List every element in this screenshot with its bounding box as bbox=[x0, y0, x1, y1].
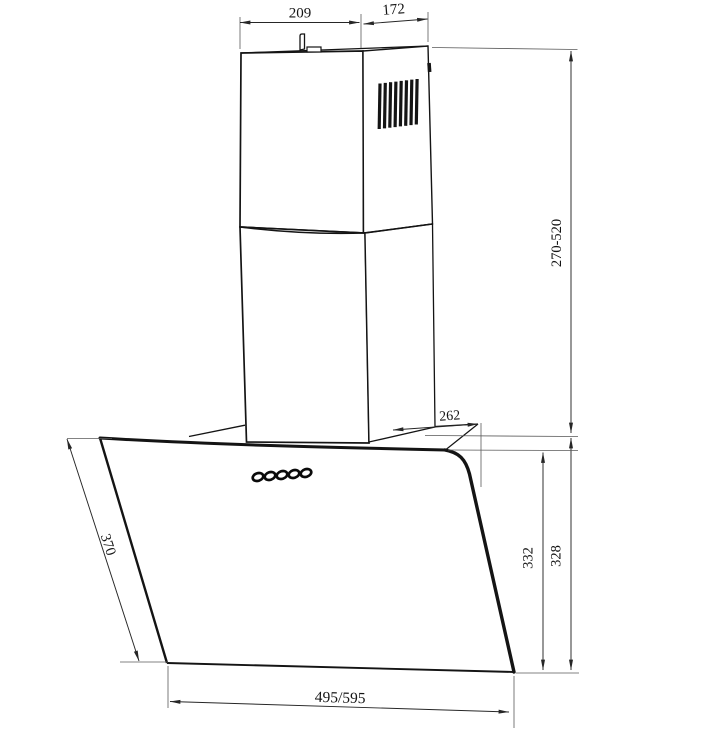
dimension-label-209: 209 bbox=[289, 6, 312, 22]
drawing-canvas: 209 172 270-520 262 328 bbox=[0, 0, 701, 735]
technical-drawing: 209 172 270-520 262 328 bbox=[0, 0, 701, 735]
dimension-chimney-top-depth: 172 bbox=[364, 1, 429, 42]
chimney-upper-front-face bbox=[240, 51, 364, 233]
chimney-upper-section bbox=[240, 46, 433, 233]
chimney-lower-front-face bbox=[240, 227, 369, 443]
dimension-label-370: 370 bbox=[97, 532, 119, 558]
dimension-hood-width: 495/595 bbox=[168, 666, 514, 728]
chimney-lower-side-face bbox=[365, 224, 435, 442]
dimension-label-495-595: 495/595 bbox=[314, 689, 366, 708]
dimension-body-height: 328 bbox=[549, 438, 572, 670]
dimension-label-328: 328 bbox=[549, 545, 565, 567]
dimension-label-270-520: 270-520 bbox=[549, 219, 565, 267]
canopy-back-left-edge bbox=[189, 425, 245, 436]
dimension-label-172: 172 bbox=[382, 1, 406, 19]
canopy-right-cap-edge bbox=[446, 424, 478, 450]
dimension-chimney-height: 270-520 bbox=[425, 48, 578, 437]
chimney-side-clip bbox=[427, 63, 431, 72]
mounting-bracket bbox=[300, 34, 321, 52]
dimension-label-262: 262 bbox=[439, 408, 461, 424]
mounting-bracket-foot bbox=[307, 47, 321, 52]
dimension-label-332: 332 bbox=[521, 547, 537, 569]
hood-body bbox=[100, 438, 514, 672]
mounting-bracket-vertical bbox=[300, 34, 305, 50]
chimney-lower-section bbox=[240, 224, 435, 443]
chimney-upper-side-face bbox=[363, 46, 433, 233]
chimney bbox=[240, 34, 435, 443]
